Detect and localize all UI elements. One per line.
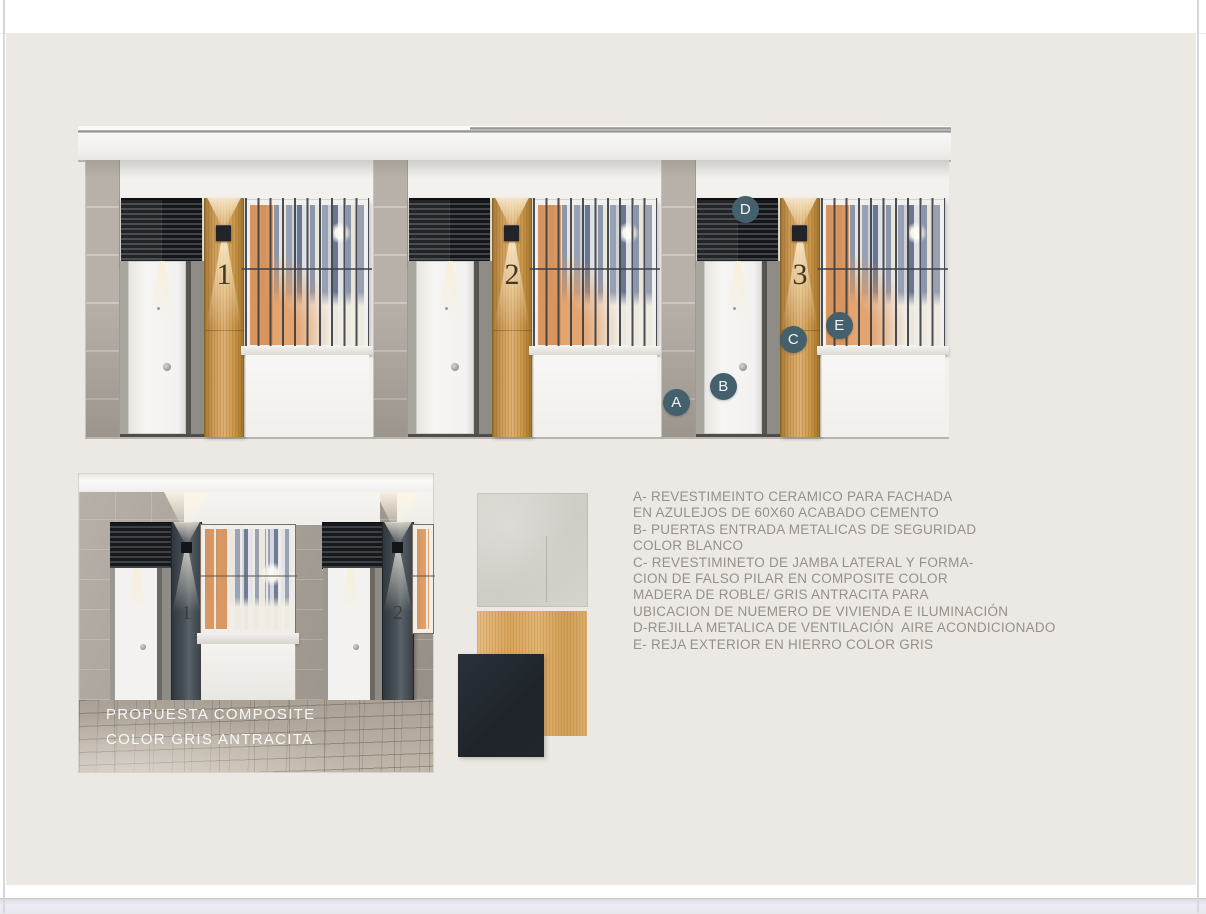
bottom-gutter [0, 885, 1206, 898]
door-knob [140, 644, 146, 650]
facade-unit-1: 1 [85, 160, 373, 437]
material-marker-a: A [663, 389, 690, 416]
oak-composite-pillar: 1 [204, 198, 244, 437]
door-knob [163, 363, 171, 371]
ac-vent-grille [121, 198, 202, 266]
document-canvas[interactable]: 1 [6, 33, 1196, 885]
wall-lamp [504, 225, 519, 241]
wall-lamp [392, 542, 403, 553]
lamp-glow-up [205, 198, 243, 225]
parapet-cornice [78, 126, 951, 162]
ac-vent-grille [409, 198, 490, 266]
door-knob [739, 363, 747, 371]
lamp-glow-up [781, 198, 819, 225]
proposal-photo-anthracite: 1 2 [79, 474, 433, 772]
facade-unit-2: 2 [373, 160, 661, 437]
wall-lamp [216, 225, 231, 241]
grille-bars [201, 525, 295, 633]
swatch-anthracite-composite [458, 654, 544, 757]
app-window: 1 [0, 0, 1206, 913]
window-partial [413, 525, 433, 633]
entry-door-bay [110, 568, 172, 700]
lamp-glow-up [172, 522, 201, 542]
material-marker-d: D [732, 196, 759, 223]
facade-unit-3: 3 [661, 160, 949, 437]
proposal-caption-line2: COLOR GRIS ANTRACITA [106, 727, 315, 752]
material-marker-e: E [826, 312, 853, 339]
legend-line: COLOR BLANCO [633, 538, 1103, 554]
door-knob [451, 363, 459, 371]
iron-grille-bars [245, 198, 369, 354]
facade-wall: 1 [85, 160, 949, 439]
legend-line: MADERA DE ROBLE/ GRIS ANTRACITA PARA [633, 587, 1103, 603]
horizontal-scrollbar[interactable] [0, 898, 1206, 914]
wall-lamp [792, 225, 807, 241]
oak-composite-pillar: 2 [492, 198, 532, 437]
lower-wall-panel [245, 355, 369, 437]
window-left-edge [3, 0, 5, 913]
house-number: 2 [383, 602, 413, 625]
house-number: 2 [493, 258, 531, 292]
window-with-grille [245, 200, 369, 350]
anthracite-composite-pillar: 1 [171, 522, 202, 700]
facade-wall: 1 2 [79, 492, 433, 702]
wall-lamp [181, 542, 192, 553]
facade-elevation-drawing: 1 [78, 126, 951, 441]
ac-vent-grille [110, 522, 171, 571]
door-knob [353, 644, 359, 650]
entry-light-cone [122, 568, 152, 614]
legend-line: C- REVESTIMINETO DE JAMBA LATERAL Y FORM… [633, 555, 1103, 571]
swatch-ceramic-tile [477, 493, 588, 607]
materials-legend: A- REVESTIMEINTO CERAMICO PARA FACHADA E… [633, 489, 1103, 653]
legend-line: B- PUERTAS ENTRADA METALICAS DE SEGURIDA… [633, 522, 1103, 538]
house-number: 3 [781, 258, 819, 292]
iron-grille-bars [533, 198, 657, 354]
legend-line: EN AZULEJOS DE 60X60 ACABADO CEMENTO [633, 505, 1103, 521]
proposal-caption: PROPUESTA COMPOSITE COLOR GRIS ANTRACITA [106, 702, 315, 752]
entry-light-cone [335, 568, 365, 614]
window-sill [817, 346, 949, 355]
legend-line: D-REJILLA METALICA DE VENTILACIÓN AIRE A… [633, 620, 1103, 636]
cornice-joint [470, 127, 800, 130]
window-sill [529, 346, 661, 355]
ceramic-tile-pilaster [85, 160, 120, 437]
material-marker-c: C [780, 326, 807, 353]
lower-wall-panel [821, 355, 945, 437]
legend-line: CION DE FALSO PILAR EN COMPOSITE COLOR [633, 571, 1103, 587]
material-marker-b: B [710, 373, 737, 400]
window-sill [197, 633, 299, 644]
grille-bars [413, 525, 433, 633]
window-sill [241, 346, 373, 355]
lamp-glow-up [493, 198, 531, 225]
house-number: 1 [172, 602, 201, 625]
window-right-edge [1197, 0, 1199, 913]
window-top-bar [0, 0, 1206, 34]
legend-line: A- REVESTIMEINTO CERAMICO PARA FACHADA [633, 489, 1103, 505]
window-with-grille [201, 525, 295, 633]
lower-wall-panel [201, 644, 295, 700]
lower-wall-panel [533, 355, 657, 437]
anthracite-composite-pillar: 2 [382, 522, 414, 700]
entry-door-bay [323, 568, 383, 700]
proposal-caption-line1: PROPUESTA COMPOSITE [106, 702, 315, 727]
cornice-joint [778, 127, 951, 130]
legend-line: UBICACION DE NUEMERO DE VIVIENDA E ILUMI… [633, 604, 1103, 620]
parapet-cornice [79, 474, 433, 493]
ac-vent-grille [322, 522, 382, 571]
house-number: 1 [205, 258, 243, 292]
oak-composite-pillar: 3 [780, 198, 820, 437]
legend-line: E- REJA EXTERIOR EN HIERRO COLOR GRIS [633, 637, 1103, 653]
window-with-grille [533, 200, 657, 350]
lamp-glow-up [383, 522, 413, 542]
ceramic-tile-pilaster [373, 160, 408, 437]
upper-white-wall [184, 492, 380, 525]
